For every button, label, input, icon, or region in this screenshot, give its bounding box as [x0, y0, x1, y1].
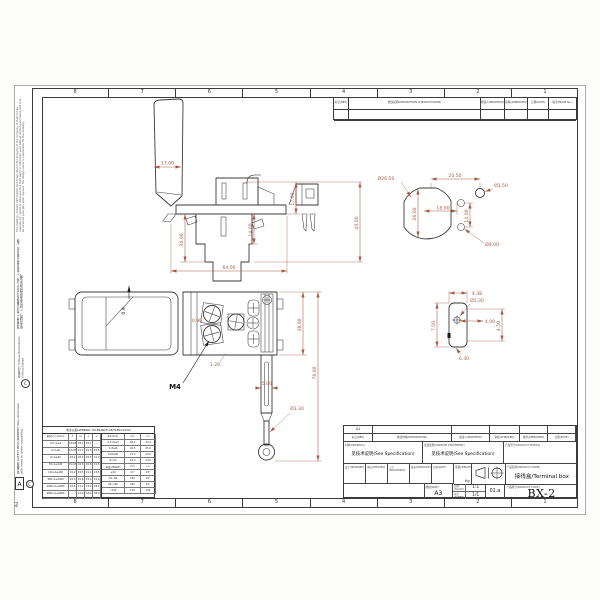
scale-value: 1:1 — [466, 484, 485, 492]
product-code-cell: 产品图号(PRODUCT CODE) BX-2 — [505, 484, 578, 499]
tolerance-angle-row: >120±10′±30′ — [102, 488, 156, 494]
grid-number: 6 — [176, 498, 243, 507]
tolerance-table-title: 未注公差(GENERAL TOLERANCE GB/T1804-2000) — [43, 427, 154, 434]
critical-mark-icon: C — [21, 379, 30, 388]
title-rev-header-cell: 审核(CHECKED) — [490, 434, 520, 443]
grid-number: 7 — [109, 88, 176, 97]
mount-plate — [176, 205, 286, 214]
dim-part-offset: 4.00 — [485, 319, 495, 325]
weight-cell: 重量(WEIGHT) Kg — [454, 464, 472, 485]
grid-number: 1 — [512, 88, 578, 97]
grid-strip-bottom: 87654321 — [42, 498, 578, 507]
grid-number: 7 — [109, 498, 176, 507]
title-block: 01 标记(REV)修改内容(DESCRIPTION)更改人(MODIFIED)… — [343, 425, 577, 498]
margin-critical-dimensions: 关键尺寸 Critical dimensions Critical Dates — [18, 332, 30, 378]
dim-pin-width: 5.00 — [262, 381, 272, 387]
size-value: A3 — [425, 490, 453, 497]
surface-value: 见技术说明(See Specification) — [423, 451, 503, 457]
title-rev-cell — [452, 426, 490, 434]
dim-offset-y: 14.00 — [464, 209, 470, 222]
detail-view: 4.38 Ø1.30 4.00 7.50 4.50 6.30 — [431, 291, 505, 362]
title-rev-header-cell: 批准(APPROVED) — [520, 434, 548, 443]
surface-label: 表面处理(SURFACE TREATMENT) — [424, 443, 465, 447]
grid-number: 5 — [243, 88, 310, 97]
title-rev-cell — [548, 426, 576, 434]
grid-number: 8 — [42, 88, 109, 97]
grid-row-letter: A — [15, 477, 24, 490]
dim-pin-diameter: Ø3.30 — [290, 405, 304, 412]
material-label: 材料(MATERIAL) — [345, 443, 365, 447]
tolerance-angle-rows: ≤10±1°±3° 10~50±30′±2° 50~120±20′±1° >12… — [102, 470, 156, 494]
sheet-size-cell: 图幅(SIZE) A3 — [425, 484, 454, 499]
model-label: 产品型号(PRODUCT MODEL) — [505, 443, 540, 447]
class-m: m — [77, 434, 85, 441]
side-view: 17.00 36.00 14.00 17.00 43.00 64.00 — [154, 99, 363, 281]
product-name-cell: 产品名称(PRODUCT NAME) 接线盒/Terminal box — [506, 464, 578, 485]
title-rev-cell: 01 — [344, 426, 373, 434]
projection-symbol-cell — [472, 464, 506, 485]
dim-box-height: 38.00 — [297, 318, 303, 331]
sheet-value: 1/1 — [466, 492, 485, 500]
tolerance-row: 1000<A≤2000±0.5±1.2±3.0±6.0 — [43, 484, 101, 491]
title-rev-cell — [520, 426, 548, 434]
dim-large-hole: Ø4.00 — [485, 241, 499, 248]
signature-cell: 日期(DATE) — [432, 464, 454, 484]
version-cell: 01.a — [486, 484, 506, 499]
tolerance-row: 120<A≤400±0.2±0.5±1.2±2.5 — [43, 470, 101, 477]
latch-bracket — [296, 184, 318, 205]
sheet-label: 张次(SHEET) — [453, 492, 466, 500]
contact-part — [449, 303, 467, 347]
safety-mark-icon: C — [26, 480, 34, 488]
lever-handle — [154, 99, 183, 206]
material-value: 见技术说明(See Specification) — [344, 451, 422, 457]
margin-sheet-size: A3 — [15, 493, 23, 507]
tolerance-row: 6<A≤30±0.1±0.2±0.5±1.0 — [43, 455, 101, 462]
margin-safety-requirement: 安全要求 SAFETY REQUIREMENT (Key dimension w… — [17, 396, 30, 474]
grid-number: 4 — [311, 498, 378, 507]
title-rev-header-cell: 修改内容(DESCRIPTION) — [373, 434, 452, 443]
margin-technical-notes: 技术要求: 1.未注公差按GB/T1804-m级。 2.制品表面不得有毛刺、裂纹… — [17, 236, 29, 329]
dim-pitch: 1.20 — [210, 362, 220, 368]
grid-strip-top: 87654321 — [42, 88, 578, 97]
tolerance-dim-header: 基本尺寸 A(mm) — [43, 434, 69, 441]
tolerance-table: 未注公差(GENERAL TOLERANCE GB/T1804-2000) 基本… — [42, 426, 155, 498]
tolerance-row: 400<A≤1000±0.3±0.8±2.0±4.0 — [43, 477, 101, 484]
weight-label: 重量(WEIGHT) — [455, 465, 472, 469]
material-cell: 材料(MATERIAL) 见技术说明(See Specification) — [344, 442, 423, 464]
dim-gap: 0.90 — [192, 318, 202, 324]
title-rev-header-cell: 标记(REV) — [344, 434, 373, 443]
tolerance-row: 0.5<A≤3±0.05±0.1±0.2— — [43, 441, 101, 448]
scale-sheet-cell: 比例(SCALE) 1:1 张次(SHEET) 1/1 — [453, 484, 485, 499]
drawing-page: { "colors": {"line": "#3a3a3a", "dim": "… — [0, 0, 600, 600]
empty-cell — [344, 484, 425, 499]
model-cell: 产品型号(PRODUCT MODEL) — [504, 442, 578, 464]
dim-tilt: 0.9 — [121, 307, 127, 314]
switch-body — [75, 292, 178, 355]
grid-number: 4 — [311, 88, 378, 97]
signature-cell: 审核(CHECKED) — [366, 464, 388, 484]
signature-cell: 设计(DESIGNED) — [344, 464, 366, 484]
circular-view: 26.00 18.00 20.50 Ø26.50 Ø3.50 14.00 Ø4.… — [378, 173, 508, 248]
signature-cell: 批准(APPROVED) — [410, 464, 432, 484]
dim-part-height2: 4.50 — [496, 321, 502, 331]
tolerance-row: 30<A≤120±0.15±0.3±0.8±1.5 — [43, 463, 101, 470]
grid-number: 5 — [243, 498, 310, 507]
hole-small — [476, 189, 485, 198]
dim-part-width: 4.38 — [472, 291, 482, 297]
tolerance-linear-table: 基本尺寸 A(mm) f m c v 0.5<A≤3±0.05±0.1±0.2—… — [43, 434, 102, 499]
tolerance-radius-rows: 0.5<R≤3±0.2±0.4 3<R≤6±0.5±1.0 6<R≤30±1.0… — [102, 440, 156, 464]
title-rev-header-cell: 日期(DATE) — [548, 434, 576, 443]
knob-body — [404, 188, 451, 239]
dim-body-height: 36.00 — [179, 233, 185, 246]
product-code-value: BX-2 — [505, 487, 578, 499]
dim-width: 64.00 — [222, 265, 235, 271]
third-angle-projection-icon — [472, 464, 505, 483]
dim-part-foot: 6.30 — [459, 356, 469, 362]
margin-disclaimer: This drawing contains information and im… — [16, 98, 30, 232]
class-v: v — [93, 434, 101, 441]
dim-mid-height: 14.00 — [248, 223, 254, 236]
tolerance-row: 3<A≤6±0.05±0.1±0.3±0.5 — [43, 448, 101, 455]
signature-cells: 设计(DESIGNED)审核(CHECKED)工艺(PROCESSED)批准(A… — [344, 464, 454, 484]
grid-number: 3 — [378, 88, 445, 97]
signature-cell: 工艺(PROCESSED) — [388, 464, 410, 484]
title-rev-row: 01 — [344, 426, 578, 434]
product-name-value: 接线盒/Terminal box — [506, 472, 578, 480]
dim-part-hole: Ø1.30 — [470, 297, 484, 304]
surface-cell: 表面处理(SURFACE TREATMENT) 见技术说明(See Specif… — [423, 442, 504, 464]
dim-total-height: 76.00 — [312, 366, 318, 379]
grid-number: 1 — [512, 498, 578, 507]
grid-number: 6 — [176, 88, 243, 97]
dim-small-hole: Ø3.50 — [494, 182, 508, 189]
grid-number: 2 — [445, 88, 512, 97]
title-rev-cell — [373, 426, 452, 434]
dim-knob-height: 26.00 — [412, 207, 418, 220]
tolerance-linear-header: 基本尺寸 A(mm) f m c v — [43, 434, 101, 441]
label-screw-spec: M4 — [169, 383, 181, 391]
dim-part-height: 7.50 — [431, 321, 437, 331]
dim-total-height: 43.00 — [354, 216, 360, 229]
product-name-label: 产品名称(PRODUCT NAME) — [507, 465, 541, 469]
scale-label: 比例(SCALE) — [453, 484, 466, 492]
grid-number: 3 — [378, 498, 445, 507]
title-rev-header-cell: 更改人(MODIFIED) — [452, 434, 490, 443]
tolerance-linear-rows: 0.5<A≤3±0.05±0.1±0.2— 3<A≤6±0.05±0.1±0.3… — [43, 441, 101, 499]
weight-unit: Kg — [465, 479, 470, 483]
grid-number: 8 — [42, 498, 109, 507]
grid-number: 2 — [445, 498, 512, 507]
size-label: 图幅(SIZE) — [426, 485, 439, 489]
class-f: f — [69, 434, 77, 441]
class-c: c — [85, 434, 93, 441]
version-value: 01.a — [486, 489, 505, 494]
dim-span: 20.50 — [448, 173, 461, 179]
dim-offset-x: 18.00 — [436, 206, 449, 212]
dim-knob-diameter: Ø26.50 — [378, 175, 395, 182]
dim-step-height: 17.00 — [290, 192, 296, 205]
tolerance-row: 2000<A≤4000—±2.0±4.0±8.0 — [43, 491, 101, 498]
dim-handle-width: 17.00 — [161, 161, 174, 167]
title-rev-header-row: 标记(REV)修改内容(DESCRIPTION)更改人(MODIFIED)审核(… — [344, 434, 578, 443]
title-rev-cell — [490, 426, 520, 434]
